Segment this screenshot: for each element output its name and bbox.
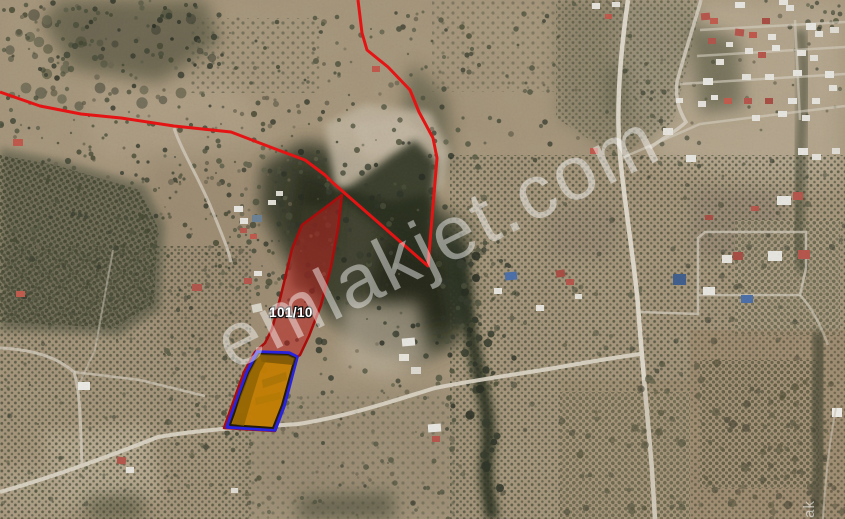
svg-text:emlak: emlak bbox=[801, 500, 818, 519]
